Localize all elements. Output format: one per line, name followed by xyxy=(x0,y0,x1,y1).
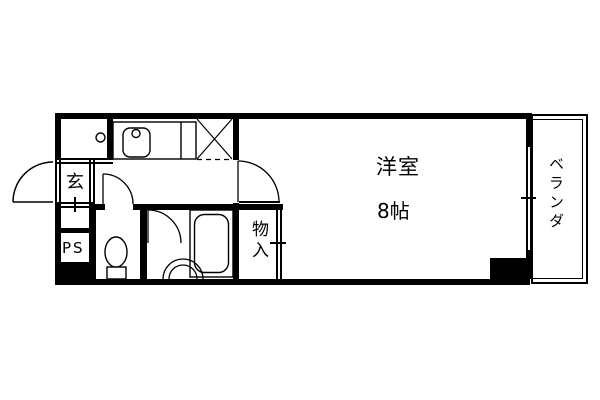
floorplan-canvas: 玄 PS 物入 洋室 8帖 ベランダ xyxy=(0,0,600,400)
door-knob-icon xyxy=(96,133,105,142)
main-room-door-swing-icon xyxy=(238,161,279,202)
room-label-balcony: ベランダ xyxy=(548,156,563,232)
bathroom-door-swing-icon xyxy=(148,210,181,243)
room-label-entrance: 玄 xyxy=(66,174,84,192)
room-label-main-room-size: 8帖 xyxy=(377,201,410,221)
bathtub-icon xyxy=(190,210,233,277)
entrance-door-swing-icon xyxy=(13,162,53,202)
room-label-storage: 物入 xyxy=(249,220,266,262)
fixtures-layer xyxy=(0,0,600,400)
room-label-pipe-space: PS xyxy=(62,241,85,256)
hallway-door-swing-icon xyxy=(103,174,133,204)
kitchen-sink-icon xyxy=(113,122,196,159)
room-label-main-room: 洋室 xyxy=(376,157,420,178)
toilet-icon xyxy=(105,237,127,279)
refrigerator-space-icon xyxy=(197,119,232,160)
